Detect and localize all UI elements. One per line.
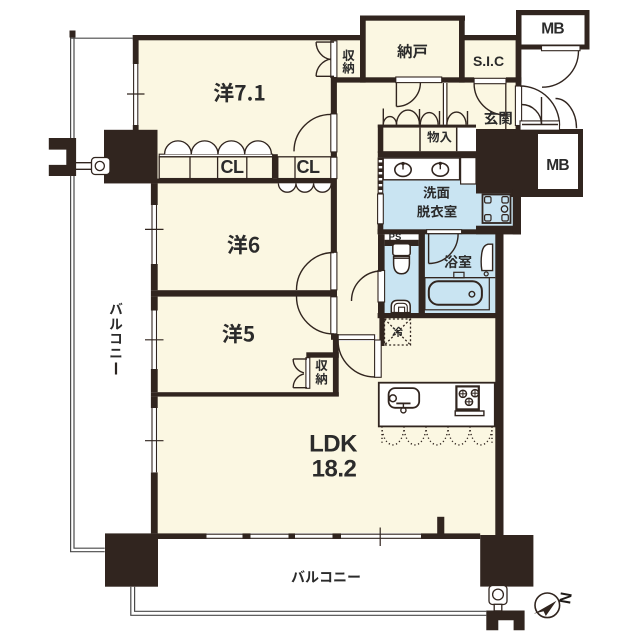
svg-text:LDK: LDK (309, 431, 358, 458)
svg-text:18.2: 18.2 (312, 456, 357, 483)
svg-text:CL: CL (297, 157, 320, 177)
svg-text:S.I.C: S.I.C (473, 53, 504, 69)
svg-text:CL: CL (221, 157, 244, 177)
svg-text:PS: PS (389, 232, 402, 243)
svg-text:MB: MB (541, 21, 564, 38)
svg-text:MB: MB (546, 157, 569, 174)
